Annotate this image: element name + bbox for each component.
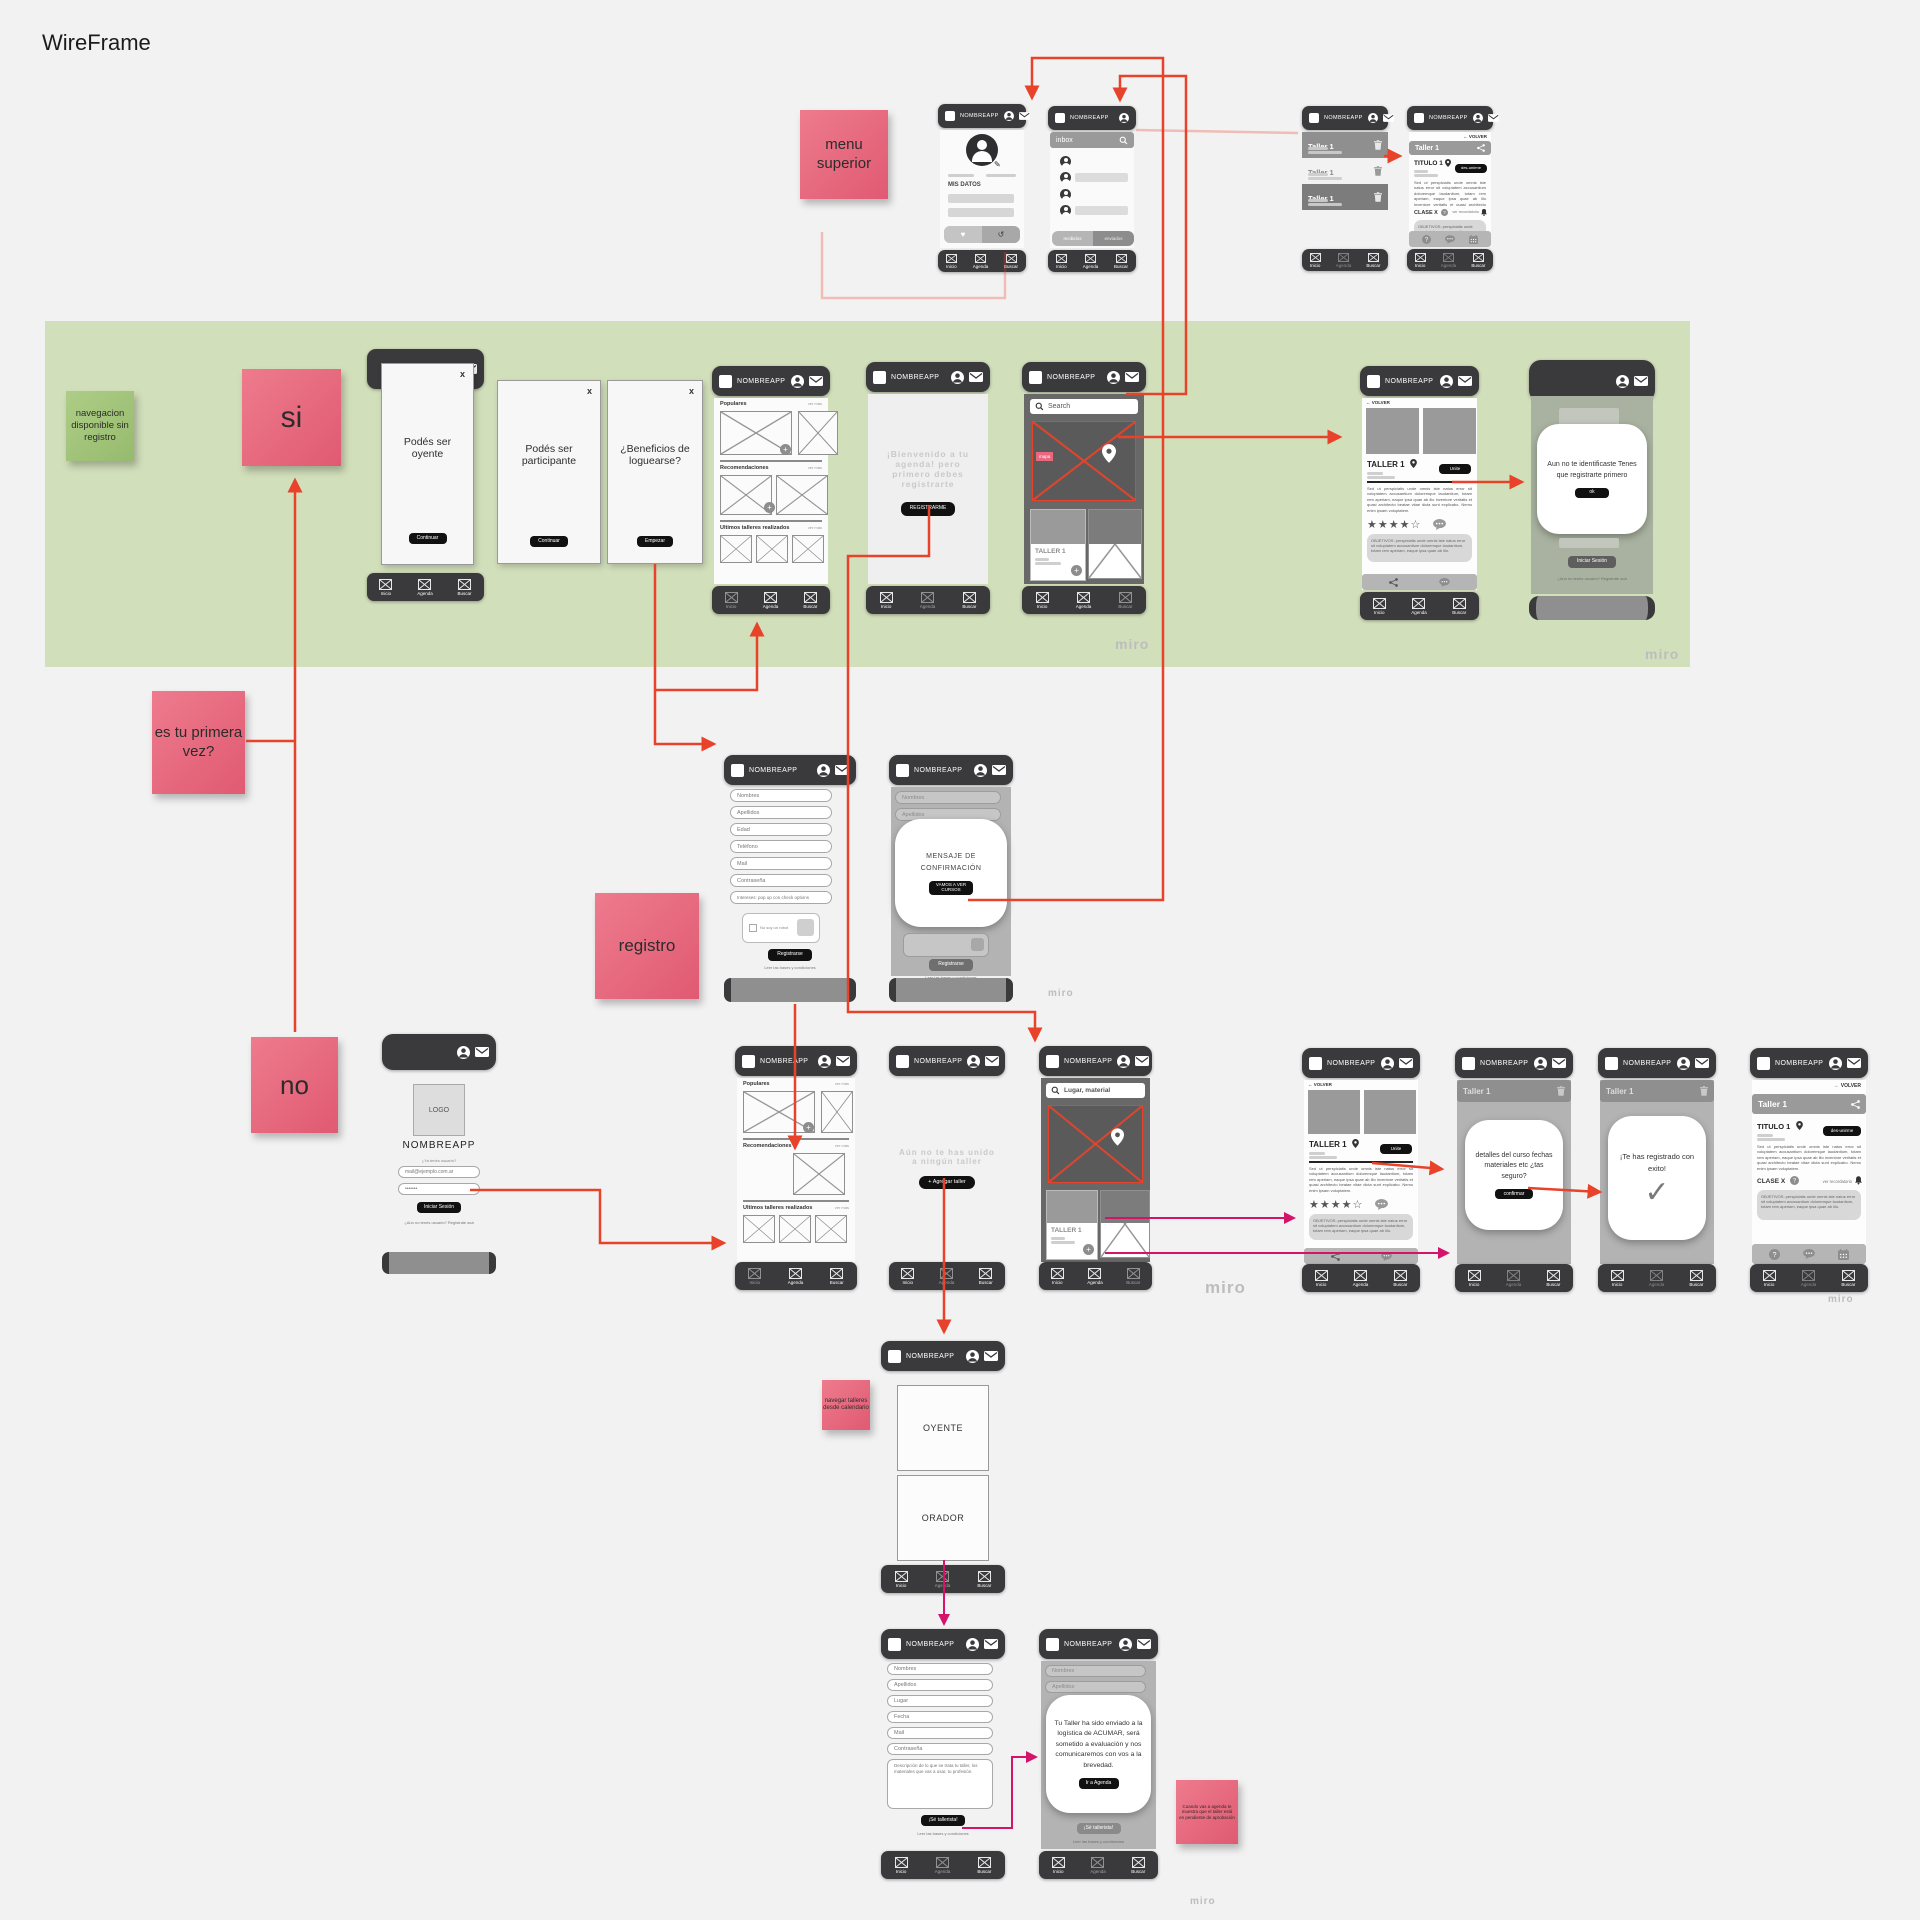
registrarme-button[interactable]: REGISTRARME: [901, 502, 955, 516]
mail-icon[interactable]: [1135, 1056, 1149, 1066]
chat-icon[interactable]: [1381, 1252, 1392, 1261]
mail-icon[interactable]: [475, 1047, 489, 1057]
nav-buscar[interactable]: Buscar: [1126, 1268, 1140, 1285]
nav-buscar[interactable]: Buscar: [1546, 1270, 1560, 1287]
nav-inicio[interactable]: Inicio: [1415, 253, 1426, 268]
taller-thumb[interactable]: [793, 1153, 845, 1195]
input-nombres[interactable]: Nombres: [730, 789, 832, 802]
bottom-bar: [724, 978, 856, 1002]
card-beneficios: x ¿Beneficios de loguearse? Empezar: [607, 380, 703, 564]
sticky-es-tu-primera-vez[interactable]: es tu primera vez?: [152, 691, 245, 794]
sticky-pendiente-aprobacion[interactable]: Cuando vas a agenda te muestra que el ta…: [1176, 1780, 1238, 1844]
bottom-nav: Inicio Agenda Buscar: [1750, 1264, 1868, 1292]
volver-link[interactable]: ← VOLVER: [1463, 134, 1487, 139]
nav-buscar[interactable]: Buscar: [1366, 253, 1380, 268]
screen-buscar-mapa: NOMBREAPP Search mapa TALLER 1 + Inicio …: [1022, 362, 1146, 614]
ok-button[interactable]: ok: [1575, 488, 1609, 498]
rol-oyente-box[interactable]: OYENTE: [897, 1385, 989, 1471]
tab-favoritos[interactable]: ♥: [944, 226, 982, 243]
continuar-button[interactable]: Continuar: [409, 533, 447, 544]
input-contrasena[interactable]: Contraseña: [887, 1743, 993, 1755]
mail-icon[interactable]: [836, 1056, 850, 1066]
app-logo: [888, 1638, 901, 1651]
share-icon[interactable]: [1477, 144, 1485, 152]
input-mail[interactable]: Mail: [887, 1727, 993, 1739]
nav-inicio[interactable]: Inicio: [895, 1857, 908, 1874]
iniciar-sesion-button[interactable]: Iniciar Sesión: [417, 1202, 461, 1213]
inbox-tabs: recibidos enviados: [1052, 231, 1134, 246]
search-bar[interactable]: Search: [1030, 399, 1138, 414]
mail-icon[interactable]: [992, 765, 1006, 775]
volver-link[interactable]: ← VOLVER: [1308, 1082, 1332, 1087]
nav-inicio[interactable]: Inicio: [1315, 1270, 1328, 1287]
profile-icon[interactable]: [1119, 1638, 1132, 1651]
app-title: NOMBREAPP: [1064, 1058, 1112, 1065]
nav-agenda[interactable]: Agenda: [935, 1857, 951, 1874]
profile-icon[interactable]: [1616, 375, 1629, 388]
taller-card[interactable]: [1088, 509, 1142, 579]
sticky-si[interactable]: si: [242, 369, 341, 466]
taller-thumb[interactable]: [743, 1215, 775, 1243]
mail-icon[interactable]: [1488, 114, 1499, 122]
taller-row[interactable]: Taller 1: [1302, 158, 1388, 184]
profile-icon[interactable]: [1381, 1057, 1394, 1070]
contact-avatar-icon: [1060, 172, 1071, 183]
nav-agenda[interactable]: Agenda: [1083, 254, 1099, 269]
ver-mas-link[interactable]: ver más: [808, 401, 822, 406]
app-title: NOMBREAPP: [960, 113, 999, 119]
app-header: NOMBREAPP: [1039, 1629, 1158, 1659]
screen-onboarding-oyente: x Podés ser oyente Continuar Inicio Agen…: [367, 349, 484, 601]
search-bar[interactable]: Lugar, material: [1046, 1083, 1145, 1098]
profile-icon[interactable]: [1117, 1055, 1130, 1068]
mail-icon[interactable]: [1383, 114, 1394, 122]
profile-icon[interactable]: [1119, 113, 1129, 123]
taller-row[interactable]: Taller 1: [1302, 132, 1388, 158]
buscar-icon: [1006, 254, 1017, 263]
app-logo: [1046, 1055, 1059, 1068]
bottom-bar: [382, 1252, 496, 1274]
profile-icon[interactable]: [457, 1046, 470, 1059]
section-populares: Populares: [720, 401, 747, 407]
ver-mas-link[interactable]: ver más: [835, 1081, 849, 1086]
continuar-button[interactable]: Continuar: [530, 536, 568, 547]
app-title: NOMBREAPP: [1327, 1060, 1376, 1067]
nav-agenda[interactable]: Agenda: [939, 1268, 955, 1285]
input-fecha[interactable]: Fecha: [887, 1711, 993, 1723]
close-icon[interactable]: x: [460, 369, 465, 379]
mail-icon[interactable]: [1634, 376, 1648, 386]
screen-body: Search mapa TALLER 1 +: [1024, 394, 1144, 584]
exito-modal: ¡Te has registrado con exito! ✓: [1608, 1116, 1706, 1240]
nav-inicio[interactable]: Inicio: [1373, 598, 1386, 615]
zoom-plus-icon[interactable]: +: [803, 1122, 814, 1133]
bottom-nav: Inicio Agenda Buscar: [1407, 249, 1493, 271]
volver-link[interactable]: ← VOLVER: [1366, 400, 1390, 405]
captcha-box-dim: [903, 933, 989, 957]
app-logo: [1414, 113, 1424, 123]
nav-agenda[interactable]: Agenda: [1506, 1270, 1522, 1287]
nav-agenda[interactable]: Agenda: [763, 592, 779, 609]
screen-body: ← VOLVER Taller 1 TITULO 1 des-unirme Se…: [1409, 132, 1491, 247]
bottom-nav: Inicio Agenda Buscar: [712, 586, 830, 614]
nav-buscar[interactable]: Buscar: [962, 592, 976, 609]
se-tallerista-button[interactable]: ¡Sé tallerista!: [921, 1815, 965, 1826]
nav-buscar[interactable]: Buscar: [1131, 1857, 1145, 1874]
chat-icon[interactable]: [1375, 1199, 1388, 1210]
sticky-no[interactable]: no: [251, 1037, 338, 1133]
nav-buscar[interactable]: Buscar: [1114, 254, 1128, 269]
descripcion-text: Sed ut perspiciatis unde omnis iste natu…: [1757, 1144, 1861, 1172]
registrate-link[interactable]: ¿Aún no tenés usuario? Registrate acá: [384, 1220, 494, 1225]
screen-buscar-lugar: NOMBREAPP Lugar, material TALLER 1 + Ini…: [1039, 1046, 1152, 1290]
nav-agenda[interactable]: Agenda: [1090, 1857, 1106, 1874]
close-icon[interactable]: x: [587, 386, 592, 396]
nav-agenda[interactable]: Agenda: [973, 254, 989, 269]
mail-icon[interactable]: [1399, 1058, 1413, 1068]
taller-row[interactable]: Taller 1: [1302, 184, 1388, 210]
map-placeholder[interactable]: [1048, 1105, 1143, 1183]
profile-icon[interactable]: [951, 371, 964, 384]
sticky-registro[interactable]: registro: [595, 893, 699, 999]
nav-agenda[interactable]: Agenda: [1801, 1270, 1817, 1287]
taller-thumb[interactable]: [756, 535, 788, 563]
talleres-list: Taller 1 Taller 1 Taller 1: [1302, 132, 1388, 210]
nav-buscar[interactable]: Buscar: [1004, 254, 1018, 269]
input-mail[interactable]: Mail: [730, 857, 832, 870]
app-title: NOMBREAPP: [1775, 1060, 1824, 1067]
app-logo: [945, 111, 955, 121]
nav-inicio[interactable]: Inicio: [1052, 1857, 1065, 1874]
add-plus-icon[interactable]: +: [1083, 1244, 1094, 1255]
taller-thumb[interactable]: [798, 411, 838, 455]
nav-agenda[interactable]: Agenda: [1441, 253, 1457, 268]
registrate-link[interactable]: ¿Aún no tenés usuario? Registrate acá: [1531, 576, 1653, 581]
app-header: NOMBREAPP: [1302, 1048, 1420, 1078]
app-header: NOMBREAPP: [1039, 1046, 1152, 1076]
screen-orador-form: NOMBREAPP Nombres Apellidos Lugar Fecha …: [881, 1629, 1005, 1879]
section-ultimos: Ultimos talleres realizados: [720, 525, 789, 531]
screen-body: inbox recibidos enviados: [1050, 132, 1134, 248]
profile-icon[interactable]: [966, 1638, 979, 1651]
rol-orador-box[interactable]: ORADOR: [897, 1475, 989, 1561]
profile-icon[interactable]: [967, 1055, 980, 1068]
sticky-navegar-talleres[interactable]: navegar talleres desde calendario: [822, 1380, 870, 1430]
question-icon[interactable]: ?: [1769, 1249, 1780, 1260]
link-talleres-orador[interactable]: [986, 174, 1016, 177]
desunirme-button[interactable]: des-unirme: [1823, 1126, 1861, 1136]
miro-watermark: miro: [1190, 1896, 1216, 1907]
nav-agenda[interactable]: Agenda: [935, 1571, 951, 1588]
link-talleres-oyente[interactable]: [948, 174, 974, 177]
nav-agenda[interactable]: Agenda: [1076, 592, 1092, 609]
close-icon[interactable]: x: [689, 386, 694, 396]
ver-mas-link[interactable]: ver más: [808, 525, 822, 530]
taller-card[interactable]: TALLER 1 +: [1046, 1190, 1098, 1260]
mail-icon[interactable]: [835, 765, 849, 775]
nav-agenda[interactable]: Agenda: [1353, 1270, 1369, 1287]
bottom-nav: Inicio Agenda Buscar: [1039, 1851, 1158, 1879]
screen-body: OYENTE ORADOR: [883, 1373, 1003, 1563]
password-input[interactable]: •••••••: [398, 1183, 480, 1195]
nav-buscar[interactable]: Buscar: [458, 579, 472, 596]
app-title: NOMBREAPP: [906, 1353, 961, 1360]
trash-icon[interactable]: [1700, 1086, 1708, 1096]
mail-input[interactable]: mail@ejemplo.com.ar: [398, 1166, 480, 1178]
clase-label: CLASE X: [1757, 1178, 1785, 1185]
screen-overlay: Taller 1 detalles del curso fechas mater…: [1457, 1080, 1571, 1264]
empezar-button[interactable]: Empezar: [637, 536, 673, 547]
nav-agenda[interactable]: Agenda: [1411, 598, 1427, 615]
mail-icon[interactable]: [1137, 1639, 1151, 1649]
bell-icon[interactable]: [1481, 209, 1487, 216]
taller-thumb[interactable]: [792, 535, 824, 563]
input-telefono[interactable]: Teléfono: [730, 840, 832, 853]
calendar-icon[interactable]: [1469, 235, 1478, 244]
desunirme-button[interactable]: des-unirme: [1455, 164, 1487, 173]
bases-link[interactable]: Leer las bases y condiciones: [883, 1831, 1003, 1836]
nav-inicio[interactable]: Inicio: [1036, 592, 1049, 609]
input-apellidos[interactable]: Apellidos: [887, 1679, 993, 1691]
tab-historial[interactable]: ↺: [982, 226, 1020, 243]
sticky-text: menu superior: [800, 136, 888, 174]
sticky-navegacion-disponible[interactable]: navegacion disponible sin registro: [66, 391, 134, 461]
objetivos-box: OBJETIVOS: perspiciatis unde omnis iste …: [1309, 1214, 1413, 1240]
screen-body: LOGO NOMBREAPP ¿Ya tenés usuario? mail@e…: [384, 1070, 494, 1250]
nav-agenda[interactable]: Agenda: [417, 579, 433, 596]
nav-inicio[interactable]: Inicio: [1468, 1270, 1481, 1287]
profile-icon[interactable]: [1004, 111, 1014, 121]
chat-icon[interactable]: [1433, 519, 1446, 530]
unite-button[interactable]: Unite: [1380, 1144, 1412, 1154]
input-nombres[interactable]: Nombres: [887, 1663, 993, 1675]
modal-text: ¡Te has registrado con exito!: [1616, 1151, 1698, 1174]
taller-thumb[interactable]: [815, 1215, 847, 1243]
nav-agenda[interactable]: Agenda: [920, 592, 936, 609]
taller-card[interactable]: [1100, 1190, 1150, 1258]
app-header: NOMBREAPP: [724, 755, 856, 785]
input-intereses[interactable]: Intereses: pop up con check options: [730, 891, 832, 904]
taller-card[interactable]: TALLER 1 +: [1030, 509, 1086, 581]
sticky-text: no: [280, 1069, 309, 1102]
search-icon[interactable]: [1119, 136, 1128, 145]
calendar-icon[interactable]: [1838, 1249, 1849, 1260]
trash-icon[interactable]: [1374, 166, 1382, 176]
bell-icon[interactable]: [1855, 1176, 1862, 1185]
sticky-menu-superior[interactable]: menu superior: [800, 110, 888, 199]
chat-icon[interactable]: [1445, 235, 1455, 244]
bottom-bar: [889, 978, 1013, 1002]
actions-bar: ?: [1752, 1244, 1866, 1264]
app-title: NOMBREAPP: [914, 767, 969, 774]
taller-thumb[interactable]: [776, 475, 828, 515]
input-lugar[interactable]: Lugar: [887, 1695, 993, 1707]
nav-agenda[interactable]: Agenda: [1087, 1268, 1103, 1285]
input-descripcion[interactable]: Descripción de lo que se trata tu taller…: [887, 1759, 993, 1809]
app-title: NOMBREAPP: [1070, 115, 1114, 121]
mail-icon[interactable]: [1458, 376, 1472, 386]
zoom-plus-icon[interactable]: +: [764, 502, 775, 513]
question-icon[interactable]: ?: [1441, 209, 1448, 216]
map-placeholder[interactable]: [1032, 421, 1136, 501]
ver-mas-link[interactable]: ver más: [835, 1205, 849, 1210]
tab-recibidos[interactable]: recibidos: [1052, 231, 1093, 246]
nav-inicio[interactable]: Inicio: [725, 592, 738, 609]
profile-icon[interactable]: [1368, 113, 1378, 123]
bottom-nav: Inicio Agenda Buscar: [866, 586, 990, 614]
share-icon[interactable]: [1851, 1100, 1860, 1109]
ir-a-agenda-button[interactable]: Ir a Agenda: [1079, 1778, 1119, 1789]
profile-icon[interactable]: [818, 1055, 831, 1068]
trash-icon[interactable]: [1374, 140, 1382, 150]
profile-icon[interactable]: [1677, 1057, 1690, 1070]
app-header: NOMBREAPP: [1048, 106, 1136, 130]
nav-inicio[interactable]: Inicio: [895, 1571, 908, 1588]
app-header: NOMBREAPP: [889, 755, 1013, 785]
nav-buscar[interactable]: Buscar: [977, 1857, 991, 1874]
taller-thumb[interactable]: [779, 1215, 811, 1243]
taller-thumb[interactable]: [720, 535, 752, 563]
rating-stars[interactable]: ★★★★☆: [1309, 1198, 1363, 1211]
screen-taller-enviado: NOMBREAPP Nombres Apellidos Tu Taller ha…: [1039, 1629, 1158, 1879]
zoom-plus-icon[interactable]: +: [780, 444, 791, 455]
nav-inicio[interactable]: Inicio: [1611, 1270, 1624, 1287]
trash-icon[interactable]: [1374, 192, 1382, 202]
volver-link[interactable]: ← VOLVER: [1834, 1083, 1861, 1089]
captcha-checkbox[interactable]: [749, 924, 757, 932]
mail-icon[interactable]: [969, 372, 983, 382]
screen-confirmar-union: NOMBREAPP Taller 1 detalles del curso fe…: [1455, 1048, 1573, 1292]
share-icon[interactable]: [1331, 1252, 1340, 1261]
iniciar-sesion-button[interactable]: Iniciar Sesión: [1568, 556, 1616, 568]
nav-buscar[interactable]: Buscar: [1452, 598, 1466, 615]
nav-agenda[interactable]: Agenda: [1649, 1270, 1665, 1287]
location-pin-icon: [1352, 1139, 1359, 1148]
inbox-row[interactable]: [1060, 205, 1128, 216]
add-plus-icon[interactable]: +: [1071, 565, 1082, 576]
input-edad[interactable]: Edad: [730, 823, 832, 836]
chat-icon[interactable]: [1803, 1249, 1815, 1259]
profile-icon[interactable]: [1829, 1057, 1842, 1070]
chat-icon[interactable]: [1439, 578, 1450, 587]
mail-icon[interactable]: [1847, 1058, 1861, 1068]
tab-enviados[interactable]: enviados: [1093, 231, 1134, 246]
app-title: NOMBREAPP: [737, 378, 786, 385]
agregar-taller-button[interactable]: + Agregar taller: [919, 1176, 975, 1189]
question-icon[interactable]: ?: [1422, 235, 1431, 244]
app-logo: [873, 371, 886, 384]
nav-inicio[interactable]: Inicio: [1051, 1268, 1064, 1285]
nav-buscar[interactable]: Buscar: [830, 1268, 844, 1285]
nav-inicio[interactable]: Inicio: [1056, 254, 1067, 269]
profile-icon[interactable]: [1107, 371, 1120, 384]
nav-buscar[interactable]: Buscar: [803, 592, 817, 609]
nav-agenda[interactable]: Agenda: [788, 1268, 804, 1285]
location-pin-icon[interactable]: [1102, 444, 1116, 463]
input-apellidos[interactable]: Apellidos: [730, 806, 832, 819]
location-pin-icon[interactable]: [1111, 1128, 1124, 1146]
nav-buscar[interactable]: Buscar: [1118, 592, 1132, 609]
profile-icon[interactable]: [817, 764, 830, 777]
bases-link[interactable]: Leer las bases y condiciones: [726, 965, 854, 970]
dato-field[interactable]: [948, 208, 1014, 217]
app-title: NOMBREAPP: [1623, 1060, 1672, 1067]
nav-inicio[interactable]: Inicio: [1310, 253, 1321, 268]
inbox-row[interactable]: [1060, 189, 1128, 200]
dato-field[interactable]: [948, 194, 1014, 203]
profile-icon[interactable]: [974, 764, 987, 777]
inbox-bar: inbox: [1050, 132, 1134, 148]
nav-buscar[interactable]: Buscar: [979, 1268, 993, 1285]
nav-inicio[interactable]: Inicio: [880, 592, 893, 609]
orador-form: Nombres Apellidos Lugar Fecha Mail Contr…: [883, 1663, 1003, 1849]
confirmar-button[interactable]: confirmar: [1495, 1189, 1533, 1199]
app-logo: [896, 1055, 909, 1068]
nav-inicio[interactable]: Inicio: [748, 1268, 761, 1285]
logo-placeholder: LOGO: [413, 1084, 465, 1136]
vamos-a-ver-cursos-button[interactable]: VAMOS A VER CURSOS: [929, 881, 973, 895]
nav-buscar[interactable]: Buscar: [1471, 253, 1485, 268]
share-icon[interactable]: [1389, 578, 1398, 587]
mail-icon[interactable]: [985, 1056, 999, 1066]
nav-buscar[interactable]: Buscar: [1689, 1270, 1703, 1287]
taller-thumb[interactable]: [821, 1091, 853, 1133]
profile-icon[interactable]: [791, 375, 804, 388]
ver-mas-link[interactable]: ver más: [808, 465, 822, 470]
app-header: NOMBREAPP: [1360, 366, 1479, 396]
ver-mas-link[interactable]: ver más: [835, 1143, 849, 1148]
taller-title-bar: Taller 1: [1600, 1080, 1714, 1102]
question-icon[interactable]: ?: [1790, 1176, 1799, 1185]
input-contrasena[interactable]: Contraseña: [730, 874, 832, 887]
nav-buscar[interactable]: Buscar: [1841, 1270, 1855, 1287]
profile-icon[interactable]: [1440, 375, 1453, 388]
bottom-nav: Inicio Agenda Buscar: [367, 573, 484, 601]
nav-agenda[interactable]: Agenda: [1336, 253, 1352, 268]
screen-body: Aún no te has unido a ningún taller + Ag…: [891, 1078, 1003, 1262]
mail-icon[interactable]: [1552, 1058, 1566, 1068]
nav-inicio[interactable]: Inicio: [901, 1268, 914, 1285]
profile-icon[interactable]: [966, 1350, 979, 1363]
inbox-row[interactable]: [1060, 172, 1128, 183]
screen-perfil: NOMBREAPP ✎ MIS DATOS ♥ ↺ Inicio Agenda …: [938, 104, 1026, 272]
mail-icon[interactable]: [984, 1639, 998, 1649]
nav-buscar[interactable]: Buscar: [977, 1571, 991, 1588]
profile-icon[interactable]: [1473, 113, 1483, 123]
modal-text: Tu Taller ha sido enviado a la logística…: [1054, 1719, 1143, 1772]
profile-icon[interactable]: [1534, 1057, 1547, 1070]
unite-button[interactable]: Unite: [1439, 464, 1471, 474]
trash-icon[interactable]: [1557, 1086, 1565, 1096]
mail-icon[interactable]: [1695, 1058, 1709, 1068]
edit-avatar-icon[interactable]: ✎: [994, 160, 1001, 169]
screen-mis-talleres: NOMBREAPP Taller 1 Taller 1 Taller 1 Ini…: [1302, 106, 1388, 271]
mail-icon[interactable]: [984, 1351, 998, 1361]
mail-icon[interactable]: [809, 376, 823, 386]
screen-body: ← VOLVER Taller 1 TITULO 1 des-unirme Se…: [1752, 1080, 1866, 1264]
rating-stars[interactable]: ★★★★☆: [1367, 518, 1421, 531]
app-title: NOMBREAPP: [1385, 378, 1435, 385]
mail-icon[interactable]: [1125, 372, 1139, 382]
app-logo: [1367, 375, 1380, 388]
nav-inicio[interactable]: Inicio: [1763, 1270, 1776, 1287]
nav-buscar[interactable]: Buscar: [1393, 1270, 1407, 1287]
nav-inicio[interactable]: Inicio: [379, 579, 392, 596]
registrarse-button[interactable]: Registrarse: [768, 949, 812, 961]
inbox-row[interactable]: [1060, 156, 1128, 167]
mail-icon[interactable]: [1019, 112, 1030, 120]
nav-inicio[interactable]: Inicio: [946, 254, 957, 269]
